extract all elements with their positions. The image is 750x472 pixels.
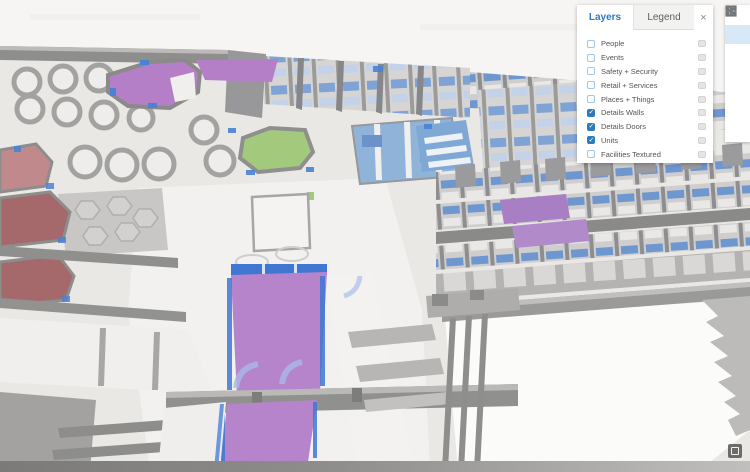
checkbox[interactable] (587, 109, 595, 117)
layer-options-icon[interactable] (698, 109, 706, 116)
layer-row-safety: Safety + Security (587, 65, 706, 79)
purple-unit-topcenter[interactable] (196, 59, 278, 82)
checkbox[interactable] (587, 54, 595, 62)
layer-label: Events (601, 53, 624, 62)
layer-options-icon[interactable] (698, 151, 706, 158)
layer-row-places: Places + Things (587, 92, 706, 106)
purple-hall-bottom[interactable] (221, 400, 317, 462)
layer-label: Details Walls (601, 108, 644, 117)
layer-label: Units (601, 136, 618, 145)
close-icon[interactable]: × (694, 5, 713, 30)
checkbox[interactable] (587, 95, 595, 103)
layer-options-icon[interactable] (698, 54, 706, 61)
panel-tabs: Layers Legend × (577, 5, 713, 30)
basemap-icon[interactable] (725, 44, 750, 64)
share-icon[interactable] (725, 103, 750, 123)
layer-label: People (601, 39, 624, 48)
layer-label: Details Doors (601, 122, 646, 131)
map-toolbar (725, 5, 750, 142)
checkbox[interactable] (587, 81, 595, 89)
layer-row-units: Units (587, 134, 706, 148)
layer-label: Safety + Security (601, 67, 658, 76)
layer-options-icon[interactable] (698, 137, 706, 144)
bottom-wall-strip (0, 461, 750, 472)
legend-list-icon[interactable] (725, 83, 750, 103)
layer-options-icon[interactable] (698, 82, 706, 89)
layer-options-icon[interactable] (698, 40, 706, 47)
layer-label: Facilities Textured (601, 150, 661, 159)
layer-row-events: Events (587, 51, 706, 65)
app-window: Layers Legend × People Events Safety + S… (0, 0, 750, 472)
layer-row-facilities: Facilities Textured (587, 147, 706, 161)
tab-legend[interactable]: Legend (633, 5, 694, 30)
layer-options-icon[interactable] (698, 68, 706, 75)
checkbox[interactable] (587, 150, 595, 158)
layer-row-details-doors: Details Doors (587, 120, 706, 134)
checkbox[interactable] (587, 67, 595, 75)
layer-row-retail: Retail + Services (587, 78, 706, 92)
gear-icon[interactable] (725, 64, 750, 84)
layer-options-icon[interactable] (698, 96, 706, 103)
checkbox[interactable] (587, 123, 595, 131)
checkbox[interactable] (587, 40, 595, 48)
layer-label: Places + Things (601, 95, 654, 104)
wrench-icon[interactable] (725, 123, 750, 143)
tab-layers[interactable]: Layers (577, 5, 633, 30)
hex-paved-terrace (58, 188, 168, 256)
globe-icon[interactable] (725, 25, 750, 45)
layers-panel: Layers Legend × People Events Safety + S… (577, 5, 713, 163)
layer-list: People Events Safety + Security Retail +… (577, 30, 713, 161)
checkbox[interactable] (587, 136, 595, 144)
watermark-icon (728, 444, 742, 458)
layer-label: Retail + Services (601, 81, 657, 90)
layer-options-icon[interactable] (698, 123, 706, 130)
layer-row-people: People (587, 37, 706, 51)
layer-row-details-walls: Details Walls (587, 106, 706, 120)
